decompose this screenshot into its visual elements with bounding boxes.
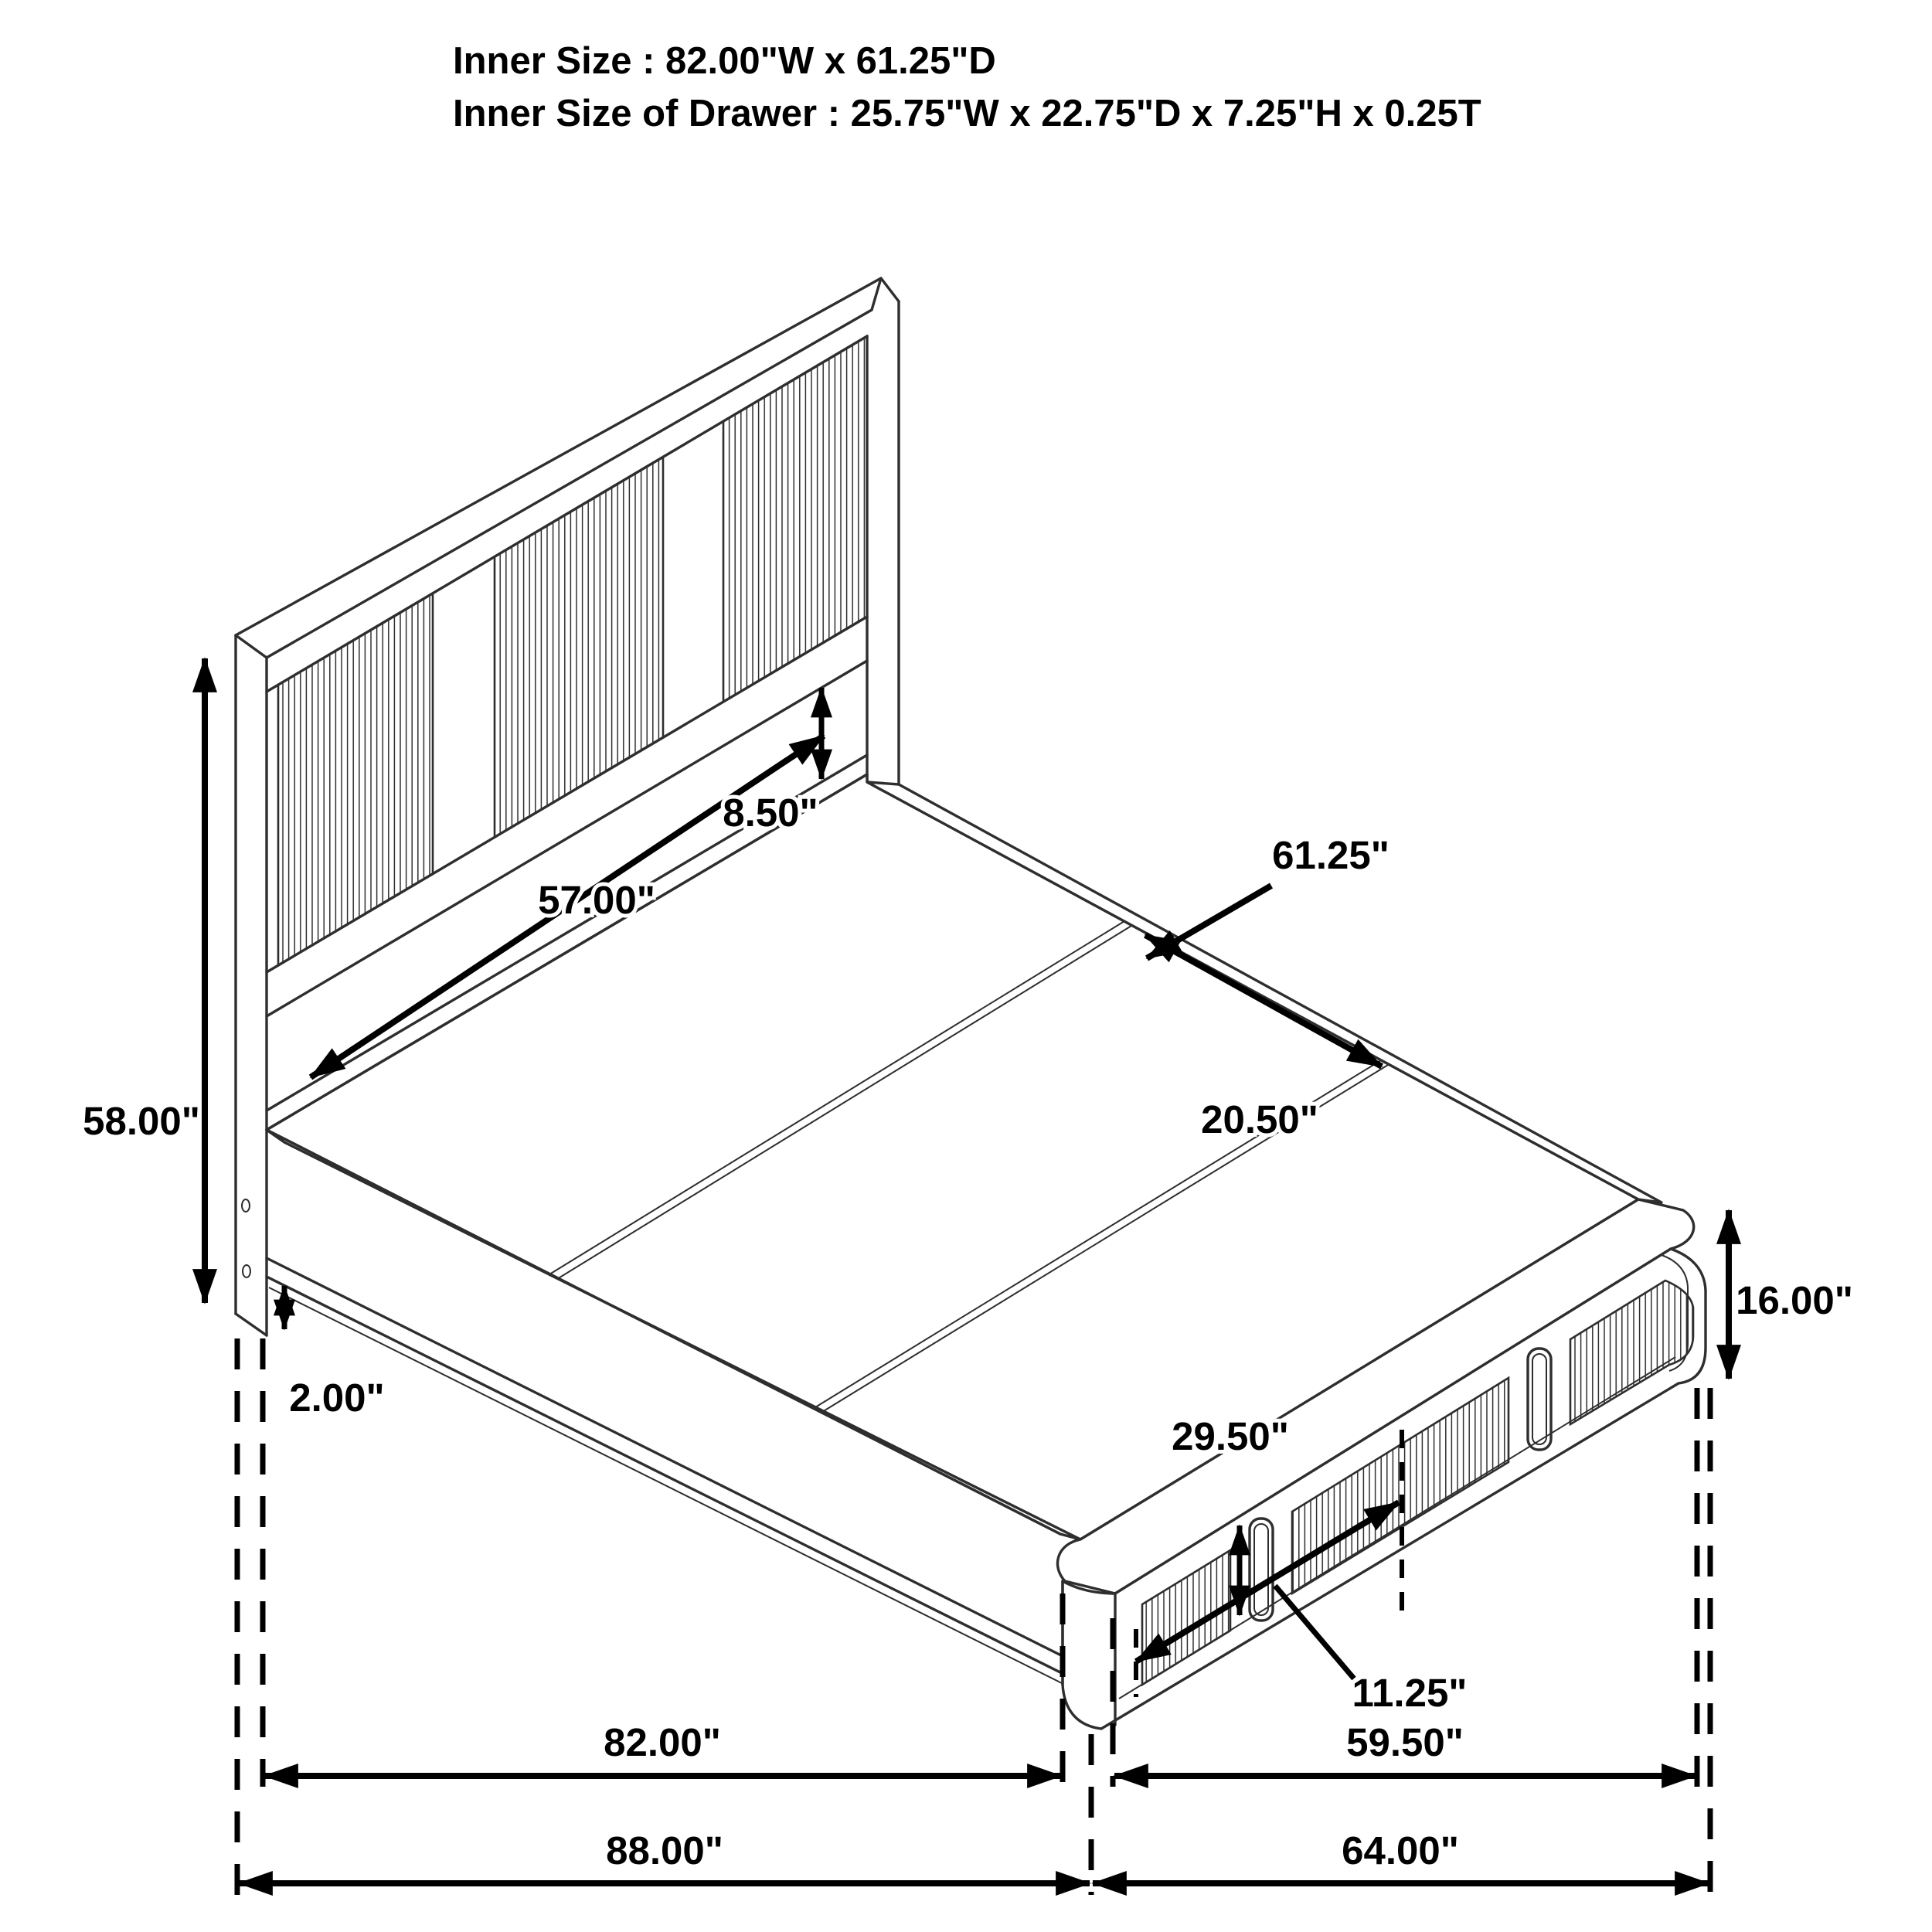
label-inner-length: 82.00" (604, 1720, 721, 1764)
label-opening-height: 8.50" (723, 791, 818, 835)
label-footboard-front-width: 59.50" (1346, 1720, 1464, 1764)
bed-dimension-diagram: Inner Size : 82.00"W x 61.25"D Inner Siz… (0, 0, 1932, 1932)
leg-hole-top (242, 1199, 250, 1212)
headboard-top-left-bevel (236, 635, 267, 658)
label-drawer-width: 29.50" (1172, 1414, 1289, 1458)
label-floor-clearance: 2.00" (289, 1376, 384, 1420)
header-line1: Inner Size : 82.00"W x 61.25"D (453, 40, 996, 82)
headboard-leg-bottom (236, 1314, 267, 1335)
label-headboard-height: 58.00" (83, 1099, 200, 1143)
label-opening-width: 57.00" (538, 878, 655, 922)
diagram-canvas: Inner Size : 82.00"W x 61.25"D Inner Siz… (0, 0, 1932, 1932)
label-outer-length: 88.00" (606, 1828, 723, 1872)
label-drawer-height: 11.25" (1352, 1671, 1468, 1715)
headboard-slat-panel-3 (723, 336, 867, 702)
label-platform-depth: 61.25" (1272, 833, 1389, 877)
label-footboard-height: 16.00" (1736, 1278, 1853, 1322)
headboard-slat-panel-2 (495, 457, 663, 837)
header-line2: Inner Size of Drawer : 25.75"W x 22.75"D… (453, 93, 1481, 134)
label-outer-width: 64.00" (1342, 1828, 1459, 1872)
headboard-slat-panel-1 (278, 594, 433, 965)
platform (267, 755, 1662, 1689)
leg-hole-bottom (243, 1265, 250, 1277)
label-board-depth: 20.50" (1201, 1097, 1318, 1141)
